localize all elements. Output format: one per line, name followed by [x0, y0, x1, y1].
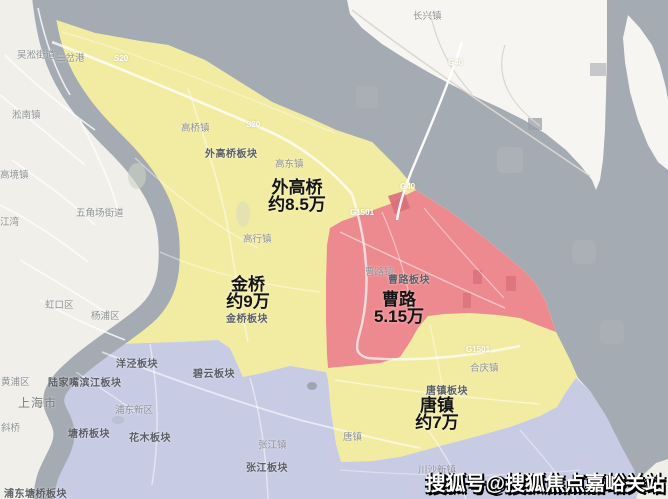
caolu-dark-patch	[463, 293, 471, 308]
caolu-dark-patch	[506, 276, 516, 291]
map-canvas	[0, 0, 668, 499]
watermark: 搜狐号@搜狐焦点嘉峪关站	[425, 467, 665, 496]
pond-patch	[112, 416, 124, 424]
park-patch	[236, 201, 250, 227]
pudong-price-map: 吴淞街道 三岔港 淞南镇 高境镇 五角场街道 江湾 高桥镇 高东镇 高行镇 长兴…	[0, 0, 668, 499]
island-patch	[590, 63, 606, 76]
park-patch	[128, 163, 146, 189]
pond-patch	[307, 382, 317, 390]
island-patch	[528, 118, 542, 130]
